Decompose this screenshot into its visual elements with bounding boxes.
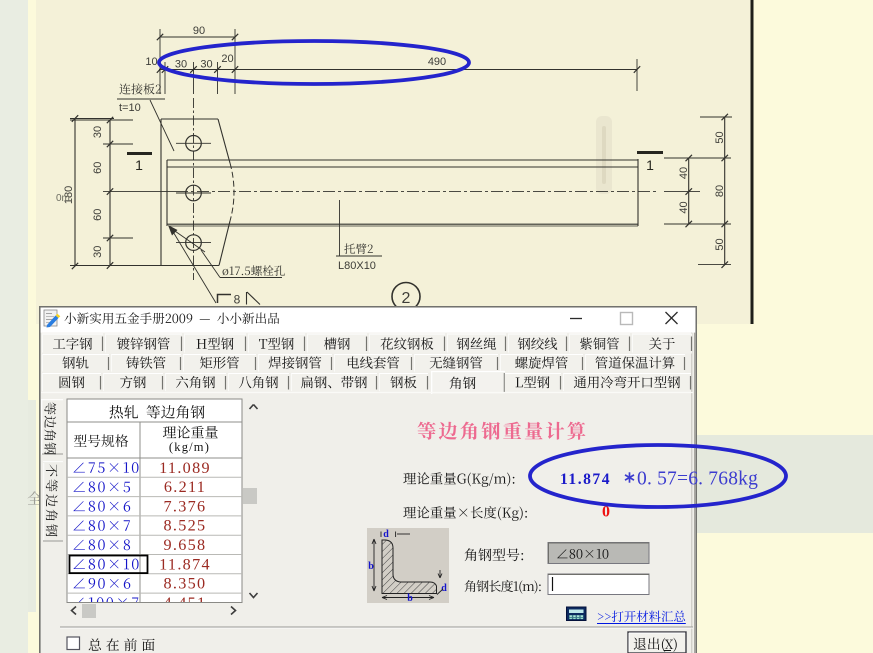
svg-text:9.658: 9.658 bbox=[164, 536, 207, 554]
svg-text:t=10: t=10 bbox=[119, 102, 141, 114]
svg-text:8: 8 bbox=[234, 293, 241, 307]
svg-text:30: 30 bbox=[92, 126, 104, 138]
svg-text:10: 10 bbox=[145, 56, 157, 68]
svg-text:30: 30 bbox=[92, 246, 104, 258]
svg-text:50: 50 bbox=[714, 131, 726, 143]
svg-text:8.350: 8.350 bbox=[164, 575, 207, 593]
svg-text:11.874: 11.874 bbox=[159, 555, 211, 573]
svg-text:6.211: 6.211 bbox=[164, 478, 206, 496]
svg-text:b: b bbox=[407, 593, 413, 604]
svg-text:30: 30 bbox=[175, 59, 187, 71]
svg-text:11.874: 11.874 bbox=[560, 471, 611, 488]
svg-text:60: 60 bbox=[92, 162, 104, 174]
svg-text:0. 57=6. 768kg: 0. 57=6. 768kg bbox=[637, 469, 758, 490]
svg-text:1: 1 bbox=[135, 157, 143, 173]
svg-text:90: 90 bbox=[193, 25, 205, 37]
svg-text:30: 30 bbox=[200, 59, 212, 71]
svg-text:8.525: 8.525 bbox=[164, 517, 207, 535]
svg-text:60: 60 bbox=[92, 209, 104, 221]
svg-text:80: 80 bbox=[714, 185, 726, 197]
svg-text:20: 20 bbox=[221, 53, 233, 65]
svg-text:490: 490 bbox=[428, 56, 446, 68]
svg-text:L80X10: L80X10 bbox=[338, 260, 376, 272]
svg-text:d: d bbox=[441, 583, 447, 594]
svg-text:b: b bbox=[368, 561, 374, 572]
svg-text:40: 40 bbox=[678, 201, 690, 213]
svg-text:0m,: 0m, bbox=[56, 193, 73, 204]
svg-text:(kg/m): (kg/m) bbox=[169, 440, 210, 454]
svg-text:40: 40 bbox=[678, 167, 690, 179]
svg-text:50: 50 bbox=[714, 238, 726, 250]
svg-text:11.089: 11.089 bbox=[159, 459, 211, 477]
svg-text:2: 2 bbox=[402, 290, 411, 307]
svg-text:d: d bbox=[383, 529, 389, 540]
svg-text:1: 1 bbox=[646, 157, 654, 173]
svg-text:7.376: 7.376 bbox=[164, 497, 207, 515]
